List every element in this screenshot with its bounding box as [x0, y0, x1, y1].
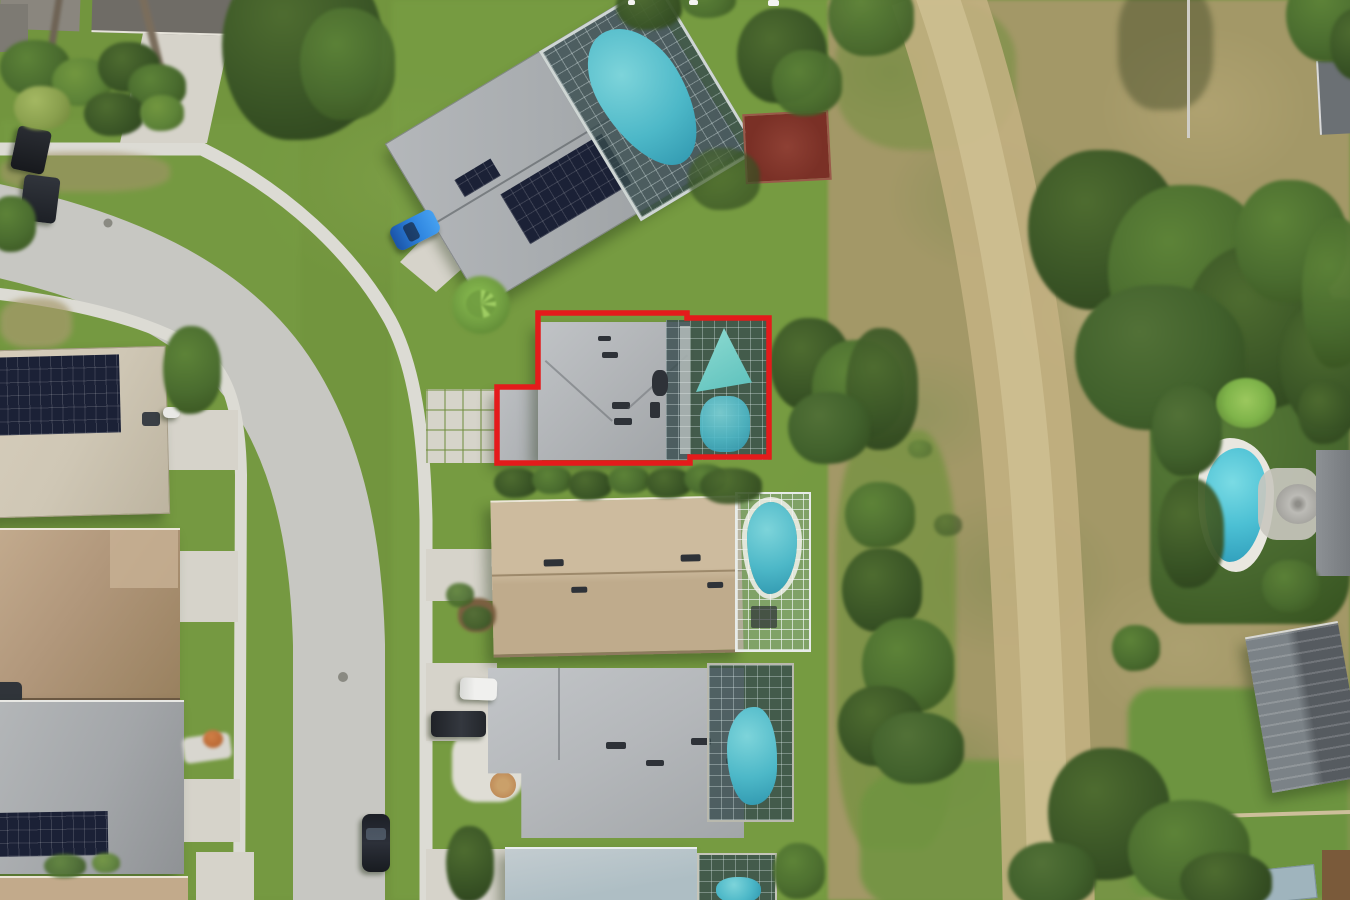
aerial-photo: [0, 0, 1350, 900]
annotation-layer: [0, 0, 1350, 900]
cropped-text-fragment: [689, 0, 698, 5]
cropped-text-fragment: [628, 0, 635, 5]
cropped-text-fragment: [768, 0, 779, 6]
subject-property-outline[interactable]: [497, 313, 769, 463]
